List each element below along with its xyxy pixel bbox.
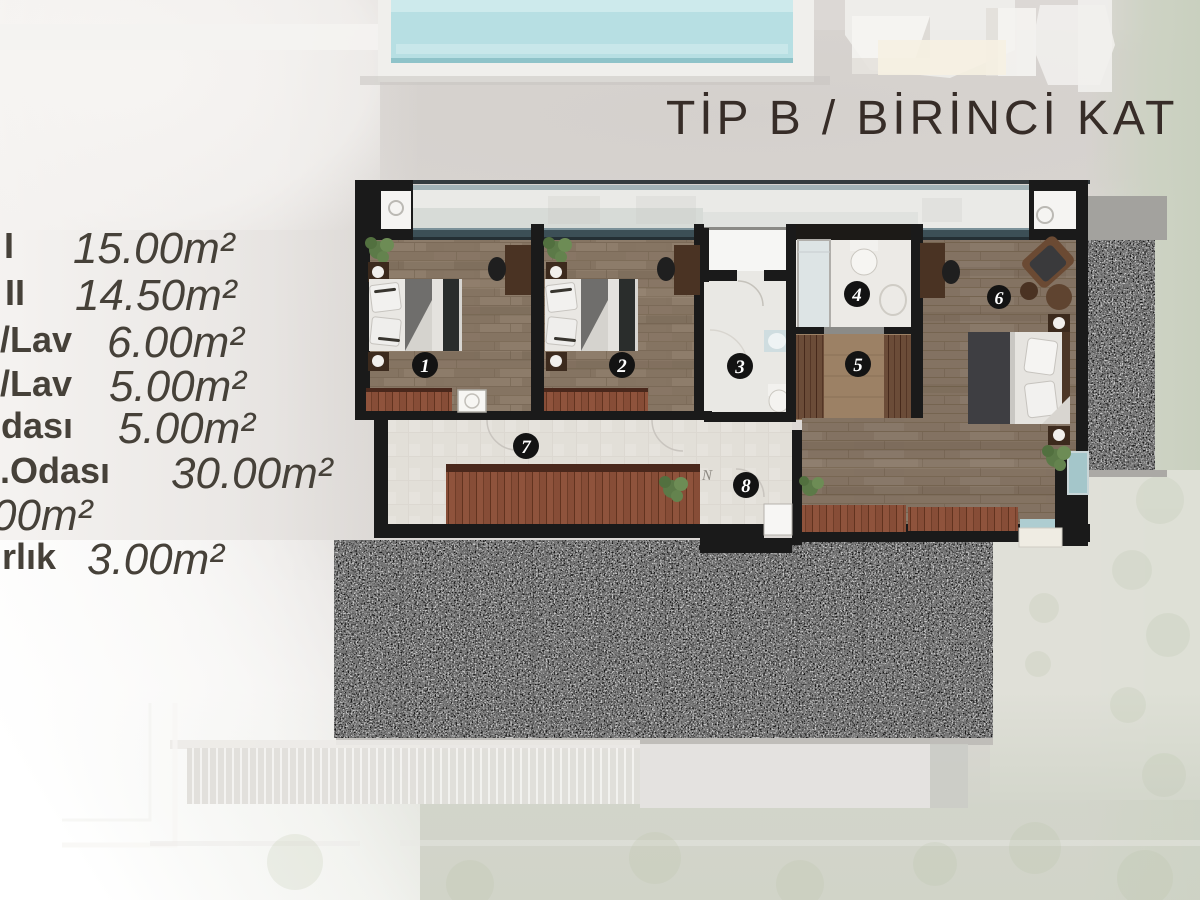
- svg-text:N: N: [701, 468, 713, 484]
- svg-text:3: 3: [734, 357, 745, 378]
- svg-text:1: 1: [420, 356, 430, 377]
- svg-text:4: 4: [851, 285, 862, 306]
- svg-text:8: 8: [741, 476, 751, 497]
- svg-text:2: 2: [616, 356, 627, 377]
- svg-text:6: 6: [995, 288, 1004, 308]
- svg-text:7: 7: [521, 437, 532, 458]
- svg-text:5: 5: [853, 355, 863, 376]
